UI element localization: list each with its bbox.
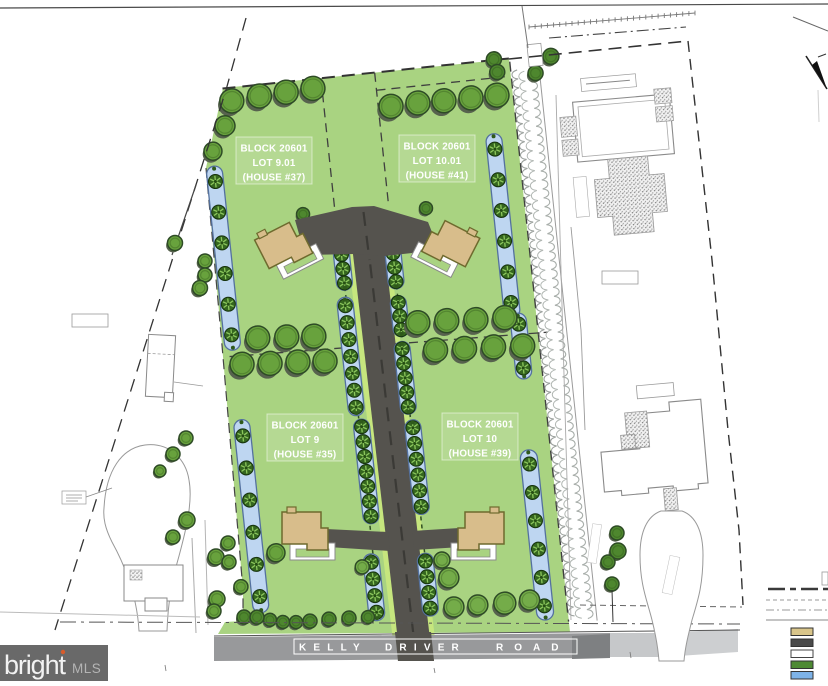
svg-text:bright: bright	[4, 650, 66, 680]
svg-text:LOT 10.01: LOT 10.01	[413, 156, 462, 167]
svg-text:LOT 9: LOT 9	[291, 435, 320, 446]
svg-text:MLS: MLS	[72, 661, 101, 676]
svg-text:KELLY: KELLY	[299, 643, 367, 654]
svg-text:(HOUSE #41): (HOUSE #41)	[406, 171, 469, 182]
svg-text:ROAD: ROAD	[496, 643, 569, 654]
svg-text:LOT 9.01: LOT 9.01	[253, 158, 296, 169]
svg-text:BLOCK 20601: BLOCK 20601	[447, 420, 514, 431]
svg-text:DRIVER: DRIVER	[385, 643, 466, 654]
svg-text:BLOCK 20601: BLOCK 20601	[241, 144, 308, 155]
svg-text:BLOCK 20601: BLOCK 20601	[404, 142, 471, 153]
svg-text:(HOUSE #35): (HOUSE #35)	[274, 450, 337, 461]
svg-text:LOT 10: LOT 10	[463, 434, 498, 445]
svg-text:BLOCK 20601: BLOCK 20601	[272, 421, 339, 432]
svg-text:(HOUSE #39): (HOUSE #39)	[449, 449, 512, 460]
svg-text:(HOUSE #37): (HOUSE #37)	[243, 173, 306, 184]
